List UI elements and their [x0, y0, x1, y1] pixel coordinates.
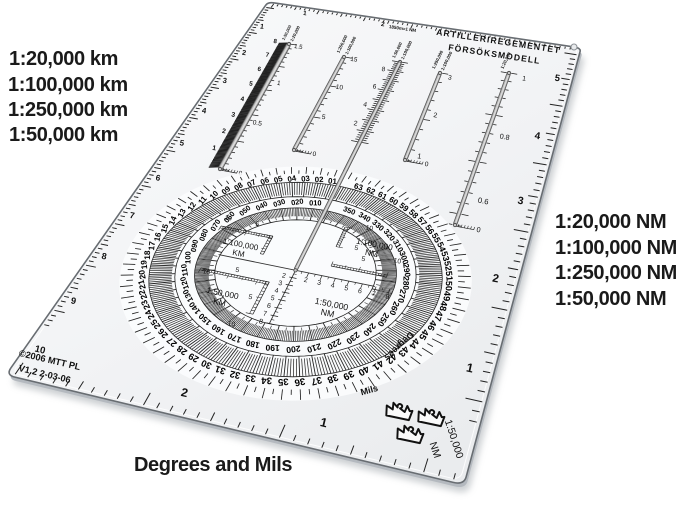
svg-text:17: 17: [147, 240, 157, 250]
svg-text:18: 18: [143, 250, 152, 260]
svg-text:50: 50: [444, 281, 454, 291]
svg-text:19: 19: [138, 259, 149, 269]
svg-text:010: 010: [309, 198, 321, 207]
svg-text:52: 52: [442, 260, 454, 272]
svg-text:100: 100: [183, 251, 192, 264]
svg-text:10: 10: [393, 257, 402, 265]
svg-text:48: 48: [437, 300, 449, 312]
svg-text:51: 51: [444, 270, 455, 281]
svg-text:110: 110: [179, 263, 190, 277]
svg-text:34: 34: [261, 374, 273, 385]
svg-text:0.8: 0.8: [499, 131, 510, 142]
svg-text:200: 200: [285, 343, 301, 355]
svg-text:280: 280: [401, 276, 410, 290]
svg-text:1.5: 1.5: [294, 43, 304, 51]
svg-text:190: 190: [265, 343, 280, 354]
svg-text:0.6: 0.6: [477, 196, 489, 207]
svg-text:49: 49: [441, 290, 452, 301]
svg-text:35: 35: [277, 375, 289, 387]
